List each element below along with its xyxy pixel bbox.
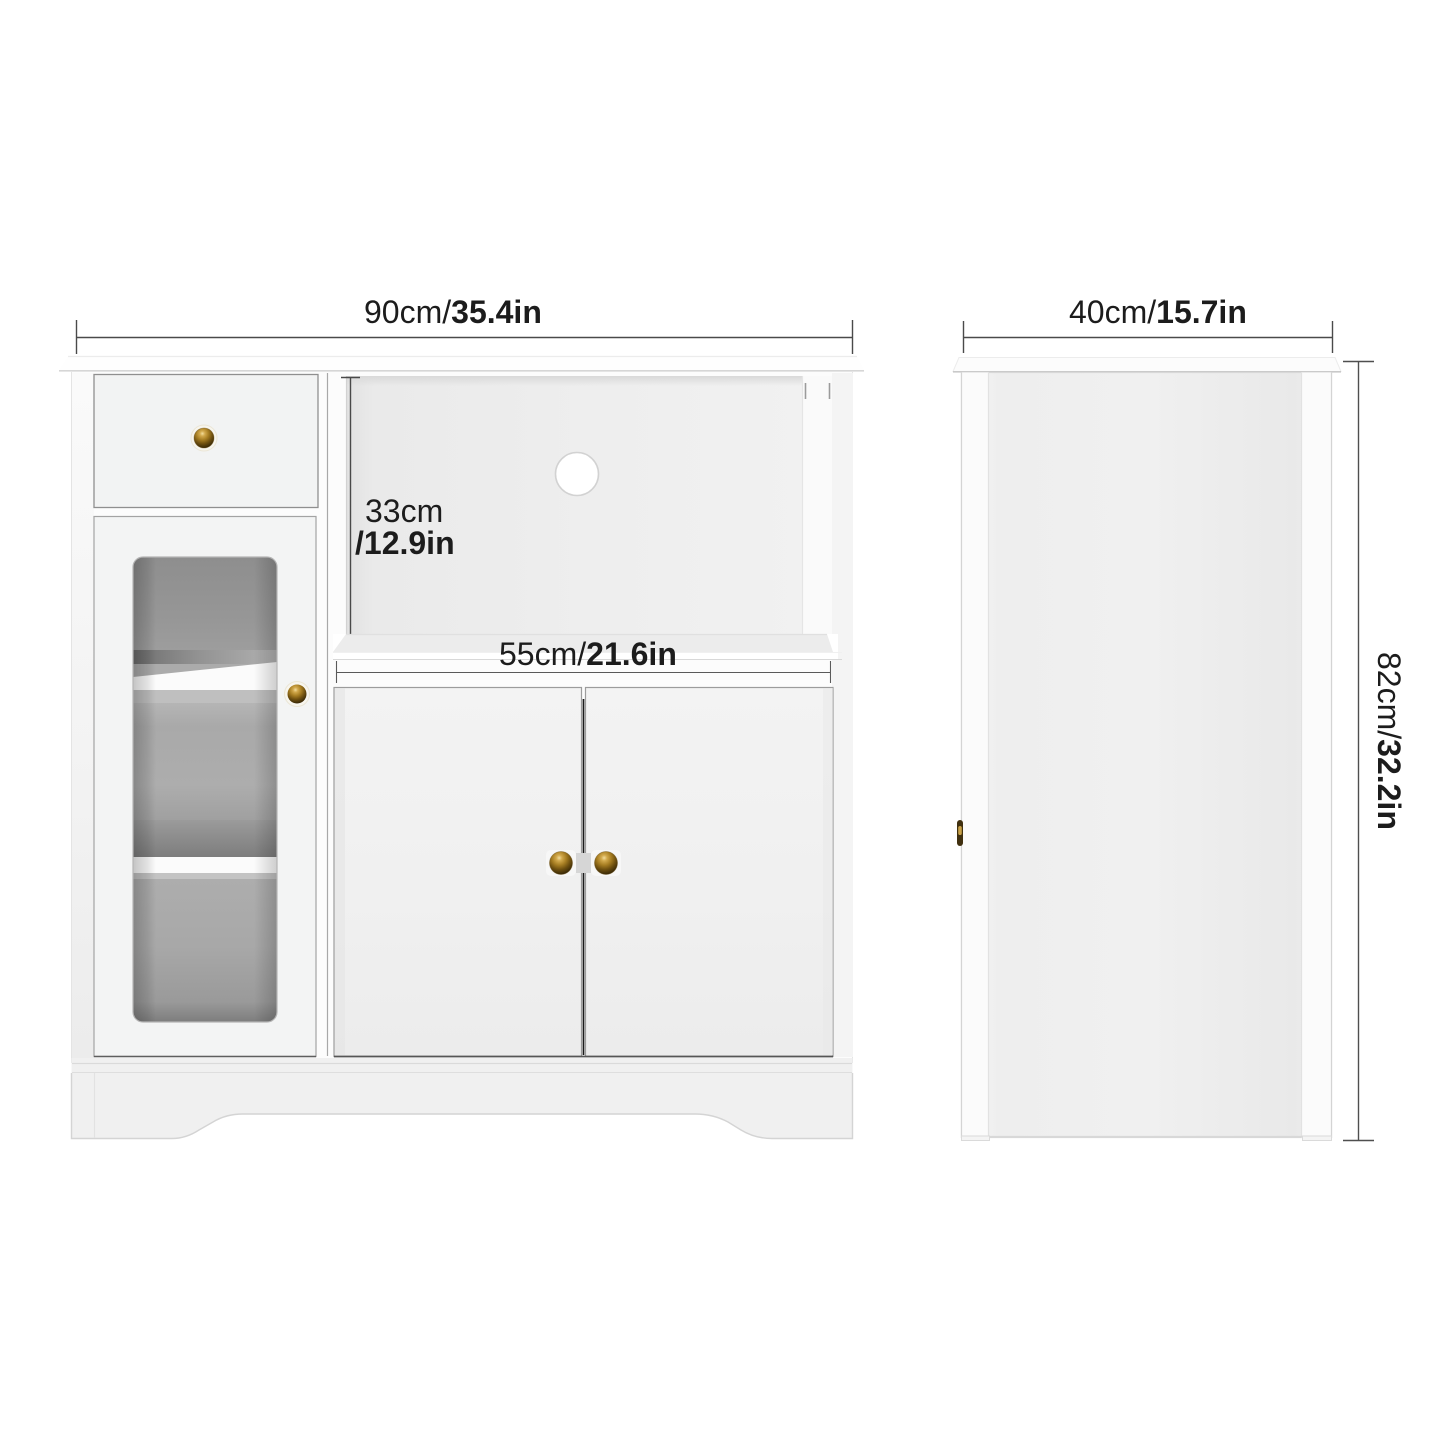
svg-text:82cm/32.2in: 82cm/32.2in	[1371, 652, 1407, 830]
svg-text:33cm: 33cm	[365, 493, 443, 529]
svg-text:40cm/15.7in: 40cm/15.7in	[1069, 294, 1247, 330]
svg-text:90cm/35.4in: 90cm/35.4in	[364, 294, 542, 330]
svg-text:/12.9in: /12.9in	[355, 525, 455, 561]
svg-text:55cm/21.6in: 55cm/21.6in	[499, 636, 677, 672]
